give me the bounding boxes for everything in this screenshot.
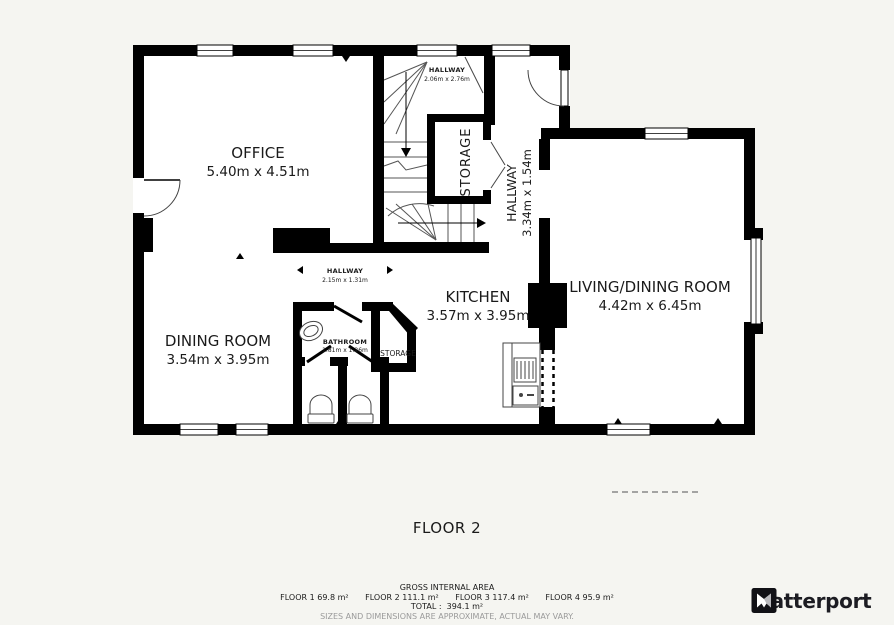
hallway-mid-label: HALLWAY bbox=[327, 267, 363, 275]
matterport-icon bbox=[751, 587, 778, 614]
kitchen-chimney bbox=[528, 283, 567, 328]
living-dining-dims: 4.42m x 6.45m bbox=[599, 298, 702, 314]
window bbox=[417, 45, 457, 56]
office-dims: 5.40m x 4.51m bbox=[207, 164, 310, 180]
kitchen-oven bbox=[513, 386, 538, 405]
floor-plan-page: OFFICE 5.40m x 4.51m HALLWAY 2.06m x 2.7… bbox=[0, 0, 894, 625]
window bbox=[180, 424, 218, 435]
window bbox=[492, 45, 530, 56]
floor-title: FLOOR 2 bbox=[413, 519, 481, 537]
bathroom-label: BATHROOM bbox=[323, 338, 367, 346]
chimney-breast bbox=[135, 218, 153, 252]
kitchen-label: KITCHEN bbox=[446, 288, 511, 306]
kitchen-counter bbox=[503, 343, 540, 407]
living-dining-label: LIVING/DINING ROOM bbox=[569, 278, 731, 296]
chimney-breast bbox=[273, 228, 330, 253]
window bbox=[607, 424, 650, 435]
dining-dims: 3.54m x 3.95m bbox=[167, 352, 270, 368]
dining-label: DINING ROOM bbox=[165, 332, 271, 350]
chimney-opening-dashed bbox=[541, 350, 554, 407]
storage-small-label: STORAGE bbox=[380, 349, 416, 358]
hallway-top-dims: 2.06m x 2.76m bbox=[424, 76, 470, 83]
matterport-logo: Matterport bbox=[751, 587, 871, 615]
floor-plan-drawing: OFFICE 5.40m x 4.51m HALLWAY 2.06m x 2.7… bbox=[0, 0, 894, 625]
bay-window bbox=[751, 238, 761, 324]
floor-area-item: FLOOR 2 111.1 m² bbox=[365, 593, 439, 602]
hallway-right-dims: 3.34m x 1.54m bbox=[520, 149, 534, 237]
bathroom-dims: 1.81m x 1.26m bbox=[322, 347, 368, 354]
window bbox=[236, 424, 268, 435]
office-label: OFFICE bbox=[231, 144, 284, 162]
hallway-top-label: HALLWAY bbox=[429, 66, 465, 74]
kitchen-dims: 3.57m x 3.95m bbox=[427, 308, 530, 324]
hallway-mid-dims: 2.15m x 1.31m bbox=[322, 277, 368, 284]
floor-area-item: FLOOR 3 117.4 m² bbox=[455, 593, 529, 602]
kitchen-stove bbox=[514, 358, 536, 382]
window bbox=[197, 45, 233, 56]
stairs-storage-label: STORAGE bbox=[459, 128, 474, 197]
window bbox=[645, 128, 688, 139]
toilet bbox=[308, 395, 334, 423]
floor-area-item: FLOOR 4 95.9 m² bbox=[545, 593, 613, 602]
floor-base bbox=[133, 45, 755, 435]
hallway-right-label: HALLWAY bbox=[504, 164, 519, 222]
floor-area-item: FLOOR 1 69.8 m² bbox=[280, 593, 348, 602]
window bbox=[293, 45, 333, 56]
toilet bbox=[347, 395, 373, 423]
